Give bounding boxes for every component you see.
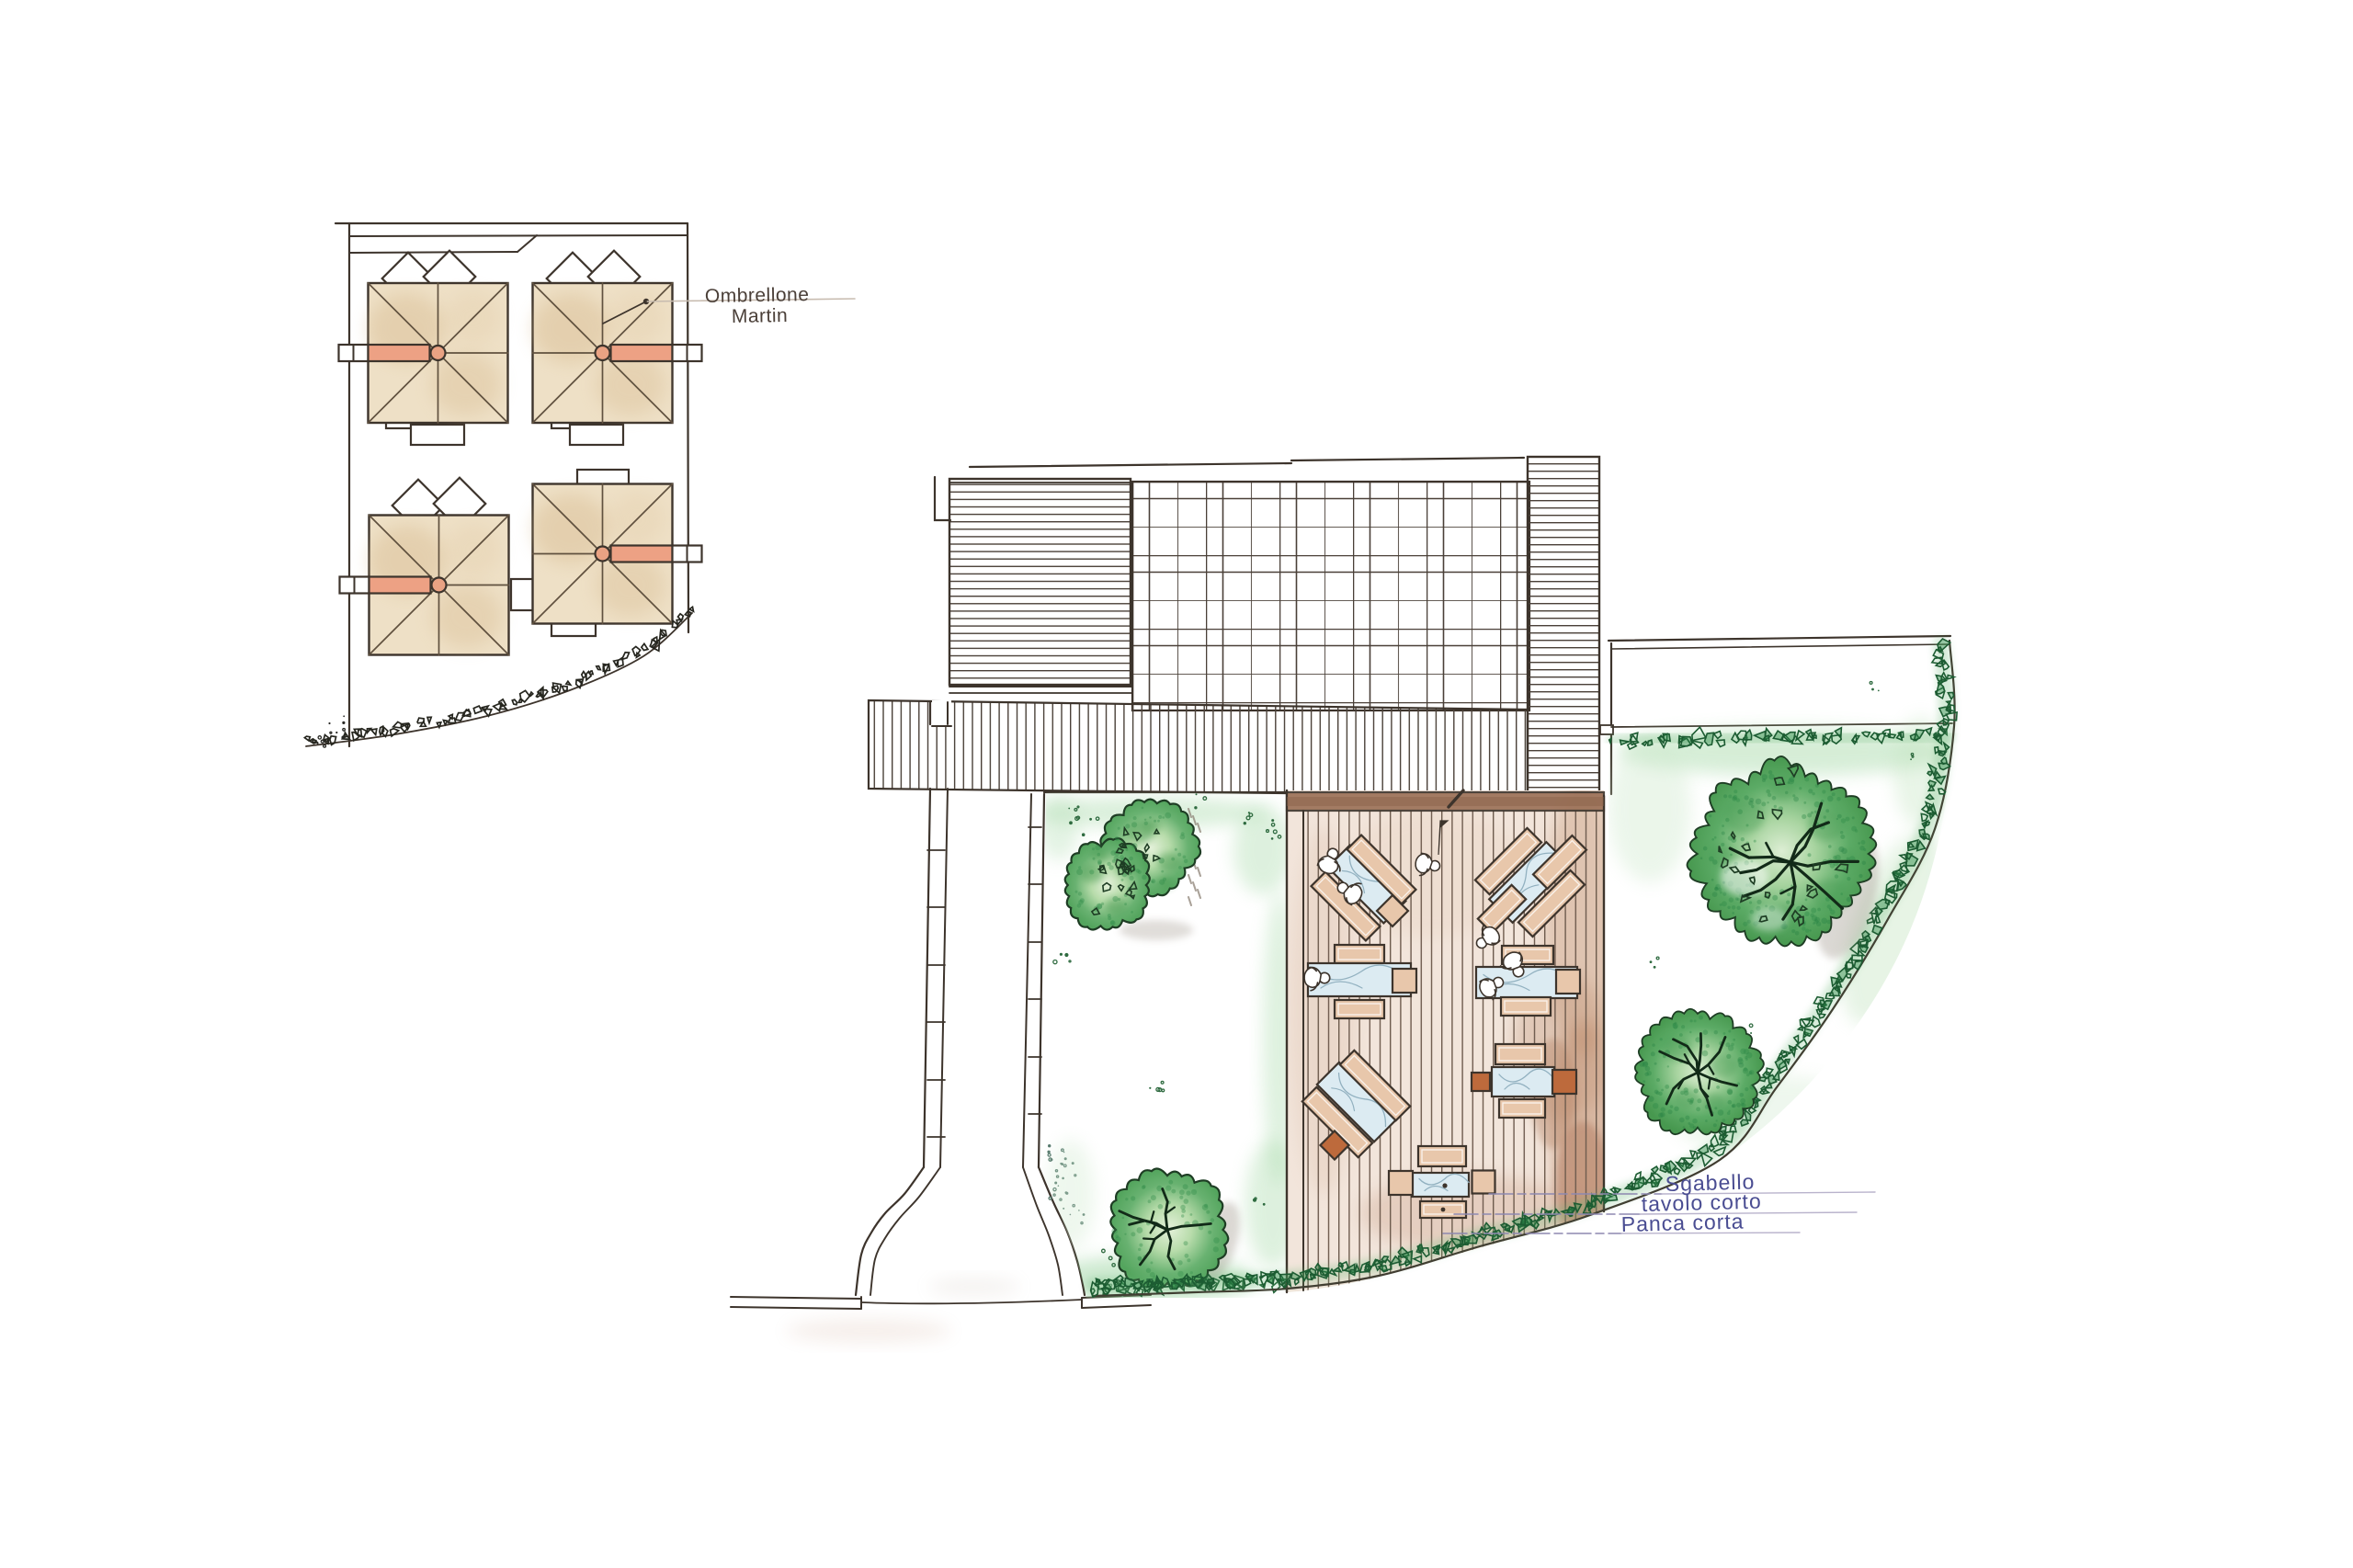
svg-text:Ombrellone: Ombrellone <box>705 284 810 307</box>
svg-text:Martin: Martin <box>732 305 789 327</box>
svg-text:Panca corta: Panca corta <box>1620 1210 1744 1236</box>
